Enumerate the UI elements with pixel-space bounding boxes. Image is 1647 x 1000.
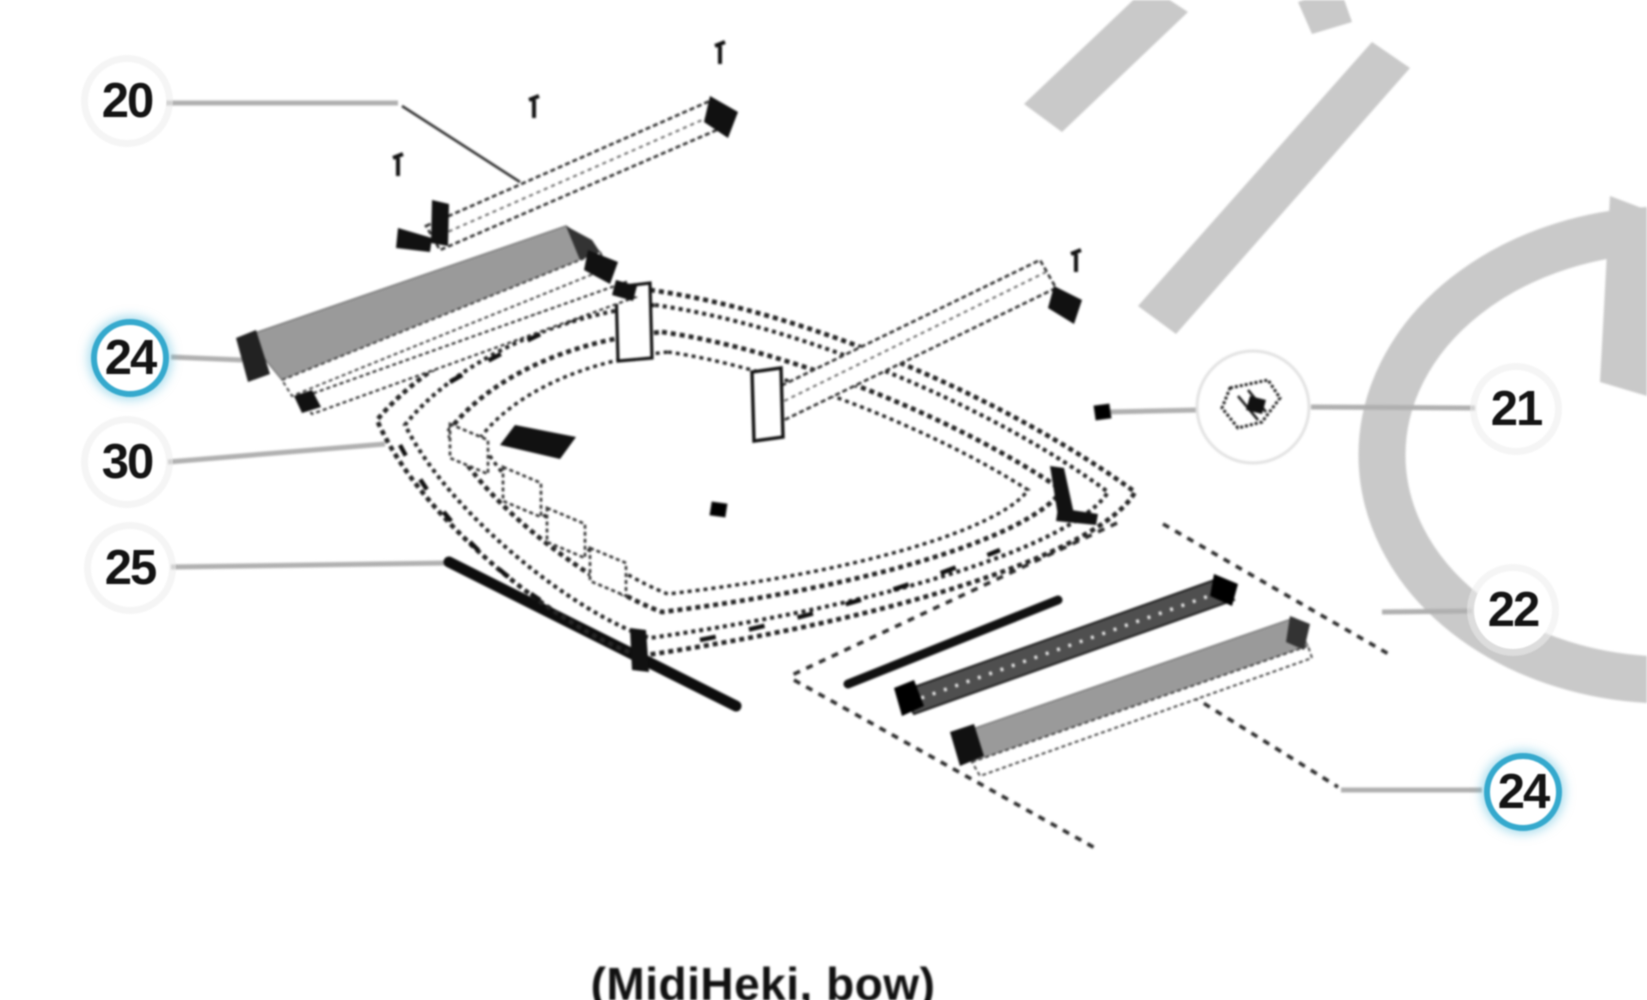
leader-25 — [171, 563, 447, 567]
callout-21: 21 — [1477, 370, 1555, 448]
screw-icon — [529, 96, 539, 118]
callout-24-right-label: 24 — [1498, 764, 1549, 820]
dashed-edge — [1192, 696, 1338, 787]
callout-22-label: 22 — [1488, 582, 1539, 638]
callout-22: 22 — [1474, 571, 1552, 649]
frame-wall-opening — [590, 548, 626, 596]
bottom-right-strips — [848, 574, 1312, 776]
adhesive-strip-24-right — [958, 618, 1308, 762]
leader-30 — [168, 444, 385, 462]
watermark-stroke — [1298, 0, 1352, 34]
diagram-stage: 20 24 30 25 21 22 24 (MidiHeki, bow) — [0, 0, 1647, 1000]
frame-corner-post — [1056, 508, 1098, 525]
clip-21 — [1197, 351, 1309, 463]
watermark-stroke — [1138, 42, 1410, 334]
bow-bar-installed — [752, 260, 1082, 441]
exploded-parts-diagram — [0, 0, 1647, 1000]
figure-caption: (MidiHeki, bow) — [413, 957, 1113, 1000]
callout-25-label: 25 — [105, 540, 156, 596]
screw-icon — [715, 42, 725, 64]
seal-strip-25 — [449, 562, 736, 706]
frame-slot — [500, 425, 576, 459]
bow-bar-20-foot-post — [431, 200, 449, 246]
screw-icon — [1071, 250, 1081, 272]
leader-22 — [1382, 611, 1472, 612]
watermark — [1024, 0, 1647, 680]
frame-accent — [700, 550, 1000, 640]
callout-24-right: 24 — [1484, 753, 1562, 831]
callout-30-label: 30 — [102, 434, 153, 490]
bow-bar-20-foot-base — [396, 228, 432, 252]
bow-bar-installed-foot-post — [752, 368, 783, 441]
mount-dot-21 — [1094, 404, 1111, 420]
bow-bar-installed-endcap — [1048, 286, 1082, 324]
frame-corner-post — [630, 628, 649, 672]
leader-20-diagonal — [402, 106, 520, 182]
leader-21-outer — [1311, 407, 1475, 408]
leader-21-inner — [1108, 410, 1197, 412]
adhesive-strip-24-left — [236, 226, 637, 414]
screw-icon — [393, 154, 403, 176]
screws — [393, 42, 1081, 272]
callout-25: 25 — [91, 529, 169, 607]
callout-30: 30 — [88, 423, 166, 501]
callout-20: 20 — [88, 62, 166, 140]
watermark-stroke — [1024, 0, 1188, 132]
callout-20-label: 20 — [102, 73, 153, 129]
frame-wall-opening — [503, 467, 541, 517]
frame-corner-post — [1050, 466, 1074, 516]
callout-24-left: 24 — [91, 319, 169, 397]
callout-21-label: 21 — [1491, 381, 1542, 437]
callout-24-left-label: 24 — [105, 330, 156, 386]
mount-dot — [710, 502, 727, 517]
leader-24-left — [171, 357, 242, 360]
